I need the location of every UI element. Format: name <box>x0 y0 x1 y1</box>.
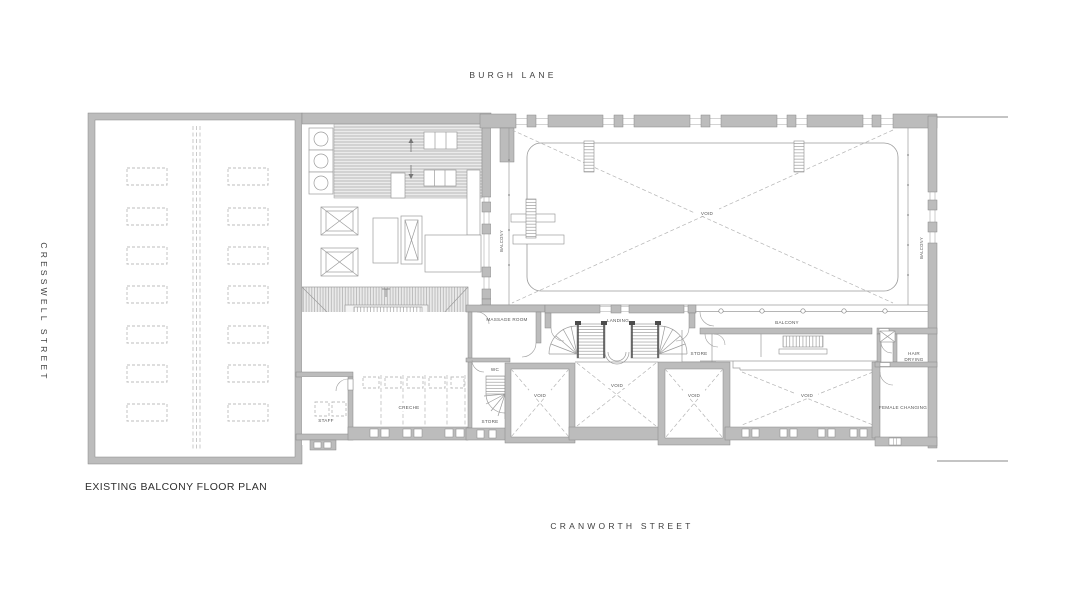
street-label-burgh-lane: BURGH LANE <box>469 70 556 80</box>
void-shaft-3 <box>658 362 730 445</box>
label-store-landing: STORE <box>691 351 708 356</box>
east-wall <box>928 116 937 448</box>
label-massage-room: MASSAGE ROOM <box>486 317 527 322</box>
sink-column <box>309 128 333 194</box>
label-balcony-corridor: BALCONY <box>775 320 799 325</box>
label-store-stair: STORE <box>482 419 499 424</box>
label-landing: LANDING <box>607 318 629 323</box>
staff-room <box>296 372 353 450</box>
block-east-wall <box>482 124 491 312</box>
label-void-3: VOID <box>688 393 701 398</box>
label-void-4: VOID <box>801 393 814 398</box>
stair-flight <box>577 324 605 358</box>
street-label-cresswell: CRESSWELL STREET <box>39 242 49 381</box>
label-female-changing: FEMALE CHANGING <box>879 405 927 410</box>
label-void-2: VOID <box>611 383 624 388</box>
plan-title: EXISTING BALCONY FLOOR PLAN <box>85 481 267 493</box>
label-void-1: VOID <box>534 393 547 398</box>
balcony-floor-plan-sheet: BURGH LANE CRESSWELL STREET CRANWORTH ST… <box>0 0 1080 590</box>
stair-flight <box>631 324 659 358</box>
label-staff: STAFF <box>318 418 333 423</box>
street-label-cranworth: CRANWORTH STREET <box>550 521 693 531</box>
label-wc: WC <box>491 367 500 372</box>
label-hair-1: HAIR <box>908 351 920 356</box>
label-creche: CRECHE <box>399 405 420 410</box>
pool-ladder <box>584 141 594 172</box>
label-hair-2: DRYING <box>904 357 923 362</box>
floor-plan-drawing: BURGH LANE CRESSWELL STREET CRANWORTH ST… <box>0 0 1080 590</box>
middle-block <box>302 113 491 312</box>
west-hall-room <box>88 113 302 464</box>
pool-ladder <box>794 141 804 172</box>
street-edges <box>937 117 1008 461</box>
void-shaft-1 <box>505 363 575 443</box>
label-balcony-east: BALCONY <box>919 237 924 259</box>
label-void-main: VOID <box>701 211 714 216</box>
label-balcony-west: BALCONY <box>499 230 504 252</box>
